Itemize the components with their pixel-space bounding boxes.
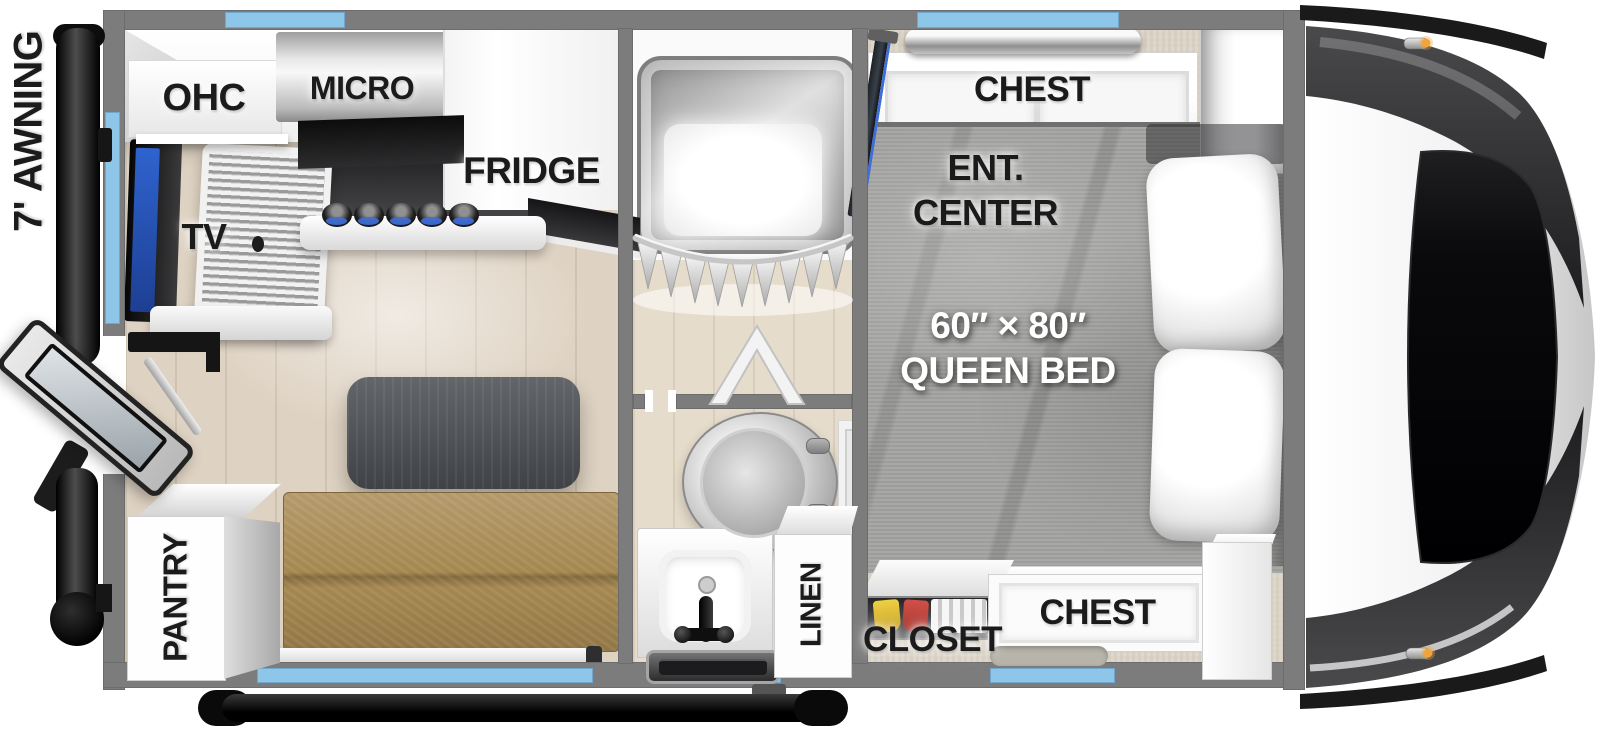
cab-roof-band-bottom bbox=[1306, 406, 1584, 688]
chest-bottom-label: CHEST bbox=[1005, 590, 1190, 636]
awning-label: 7' AWNING bbox=[0, 6, 58, 256]
bath-door-jamb-1 bbox=[645, 390, 653, 412]
ohc-label: OHC bbox=[128, 60, 280, 136]
pillow-2 bbox=[1149, 348, 1286, 544]
bumper-right-cap bbox=[794, 690, 848, 726]
wall-bath-bedroom bbox=[852, 28, 868, 664]
toilet-hinge-1 bbox=[806, 438, 830, 454]
wall-kitchen-bath bbox=[618, 28, 633, 664]
cab-windshield bbox=[1408, 151, 1557, 563]
fridge-label: FRIDGE bbox=[443, 138, 620, 204]
chest-top-label: CHEST bbox=[868, 66, 1196, 114]
pantry-side bbox=[224, 516, 280, 679]
shower-floor bbox=[664, 124, 822, 236]
stove-knob bbox=[322, 203, 352, 227]
ent-center-label: ENT. CENTER bbox=[878, 140, 1093, 240]
stove-knob bbox=[449, 203, 479, 227]
stove-knob bbox=[417, 203, 447, 227]
closet-label: CLOSET bbox=[850, 618, 1015, 662]
wall-bath-mid bbox=[676, 394, 852, 409]
window-top-1 bbox=[225, 12, 345, 28]
pantry-label: PANTRY bbox=[127, 516, 224, 679]
ent-center-line-1: ENT. bbox=[947, 145, 1023, 190]
window-bottom-1 bbox=[257, 668, 593, 683]
micro-label: MICRO bbox=[276, 58, 448, 118]
tv-label: TV bbox=[170, 214, 238, 260]
faucet-knob-right bbox=[717, 626, 734, 643]
range-hood bbox=[298, 115, 464, 169]
pillow-1 bbox=[1145, 153, 1287, 356]
stove-knob bbox=[354, 203, 384, 227]
cab-rear-spoiler-bottom bbox=[1300, 655, 1547, 709]
sink-drain bbox=[698, 576, 716, 594]
stove-knob bbox=[386, 203, 416, 227]
cab-band-highlight bbox=[1320, 42, 1518, 116]
ent-center-line-2: CENTER bbox=[913, 190, 1058, 235]
bath-door-jamb-2 bbox=[668, 390, 676, 412]
floorplan-canvas: 7' AWNING OHC MICRO FRIDGE TV PANTRY LIN… bbox=[0, 0, 1600, 738]
wall-bath-stub bbox=[633, 394, 645, 409]
wall-right bbox=[1283, 10, 1305, 690]
cab-rear-spoiler-top bbox=[1300, 5, 1547, 59]
cab-body bbox=[1306, 26, 1595, 688]
sofa bbox=[283, 492, 620, 652]
faucet-knob-left bbox=[674, 626, 691, 643]
bed-size-line-2: QUEEN BED bbox=[900, 348, 1115, 393]
bed-size-label: 60″ × 80″ QUEEN BED bbox=[872, 298, 1144, 398]
window-top-2 bbox=[917, 12, 1119, 28]
cab-marker-light-top bbox=[1404, 36, 1433, 50]
bumper-bar bbox=[222, 694, 822, 722]
linen-label: LINEN bbox=[774, 534, 850, 676]
awning-bracket-top bbox=[98, 128, 112, 162]
dinette-table bbox=[347, 377, 580, 489]
nightstand bbox=[1202, 542, 1272, 680]
truck-cab bbox=[1300, 5, 1595, 709]
window-bottom-3 bbox=[990, 668, 1115, 683]
awning-bracket-bottom bbox=[96, 584, 112, 612]
cab-marker-light-bottom bbox=[1406, 646, 1435, 660]
headboard-cylinder bbox=[905, 28, 1141, 54]
cab-chrome-strip bbox=[1310, 607, 1512, 668]
entry-door-jamb bbox=[206, 332, 220, 372]
awning-pole-top bbox=[56, 28, 100, 366]
bed-size-line-1: 60″ × 80″ bbox=[930, 303, 1085, 348]
vent-knob bbox=[252, 236, 264, 252]
cab-roof-band-top bbox=[1306, 26, 1584, 308]
entry-step-well bbox=[646, 650, 780, 684]
